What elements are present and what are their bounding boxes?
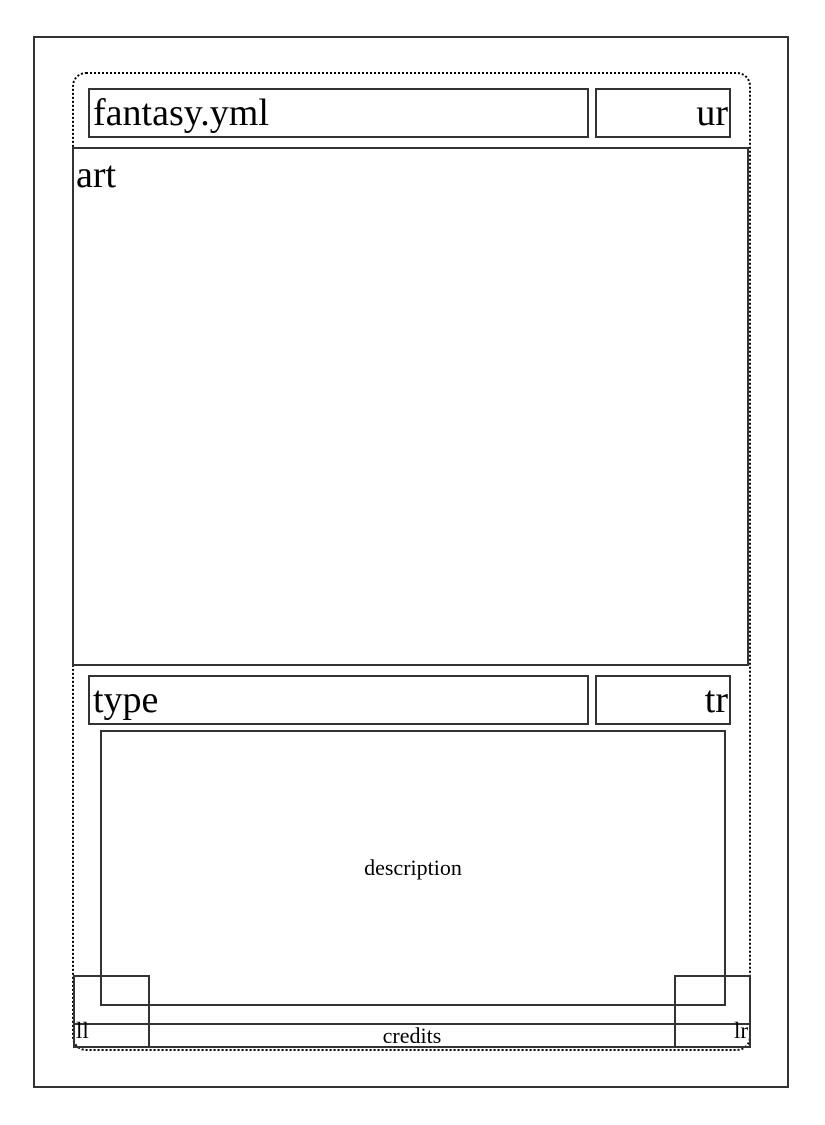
credits-bar: credits	[73, 1023, 751, 1048]
lower-left-box: ll	[73, 975, 150, 1048]
type-label: type	[93, 677, 158, 723]
lower-left-label: ll	[76, 1019, 89, 1042]
upper-right-label: ur	[696, 90, 728, 136]
description-box: description	[100, 730, 726, 1006]
type-right-box: tr	[595, 675, 731, 725]
type-box: type	[88, 675, 589, 725]
lower-right-box: lr	[674, 975, 751, 1048]
title-box: fantasy.yml	[88, 88, 589, 138]
card-template-sheet: fantasy.yml ur art type tr description c…	[0, 0, 825, 1125]
credits-label: credits	[383, 1025, 442, 1047]
title-label: fantasy.yml	[93, 90, 269, 136]
description-label: description	[364, 857, 462, 879]
art-label: art	[76, 153, 116, 197]
type-right-label: tr	[705, 677, 728, 723]
upper-right-box: ur	[595, 88, 731, 138]
lower-right-label: lr	[734, 1019, 748, 1042]
art-box: art	[72, 147, 749, 666]
